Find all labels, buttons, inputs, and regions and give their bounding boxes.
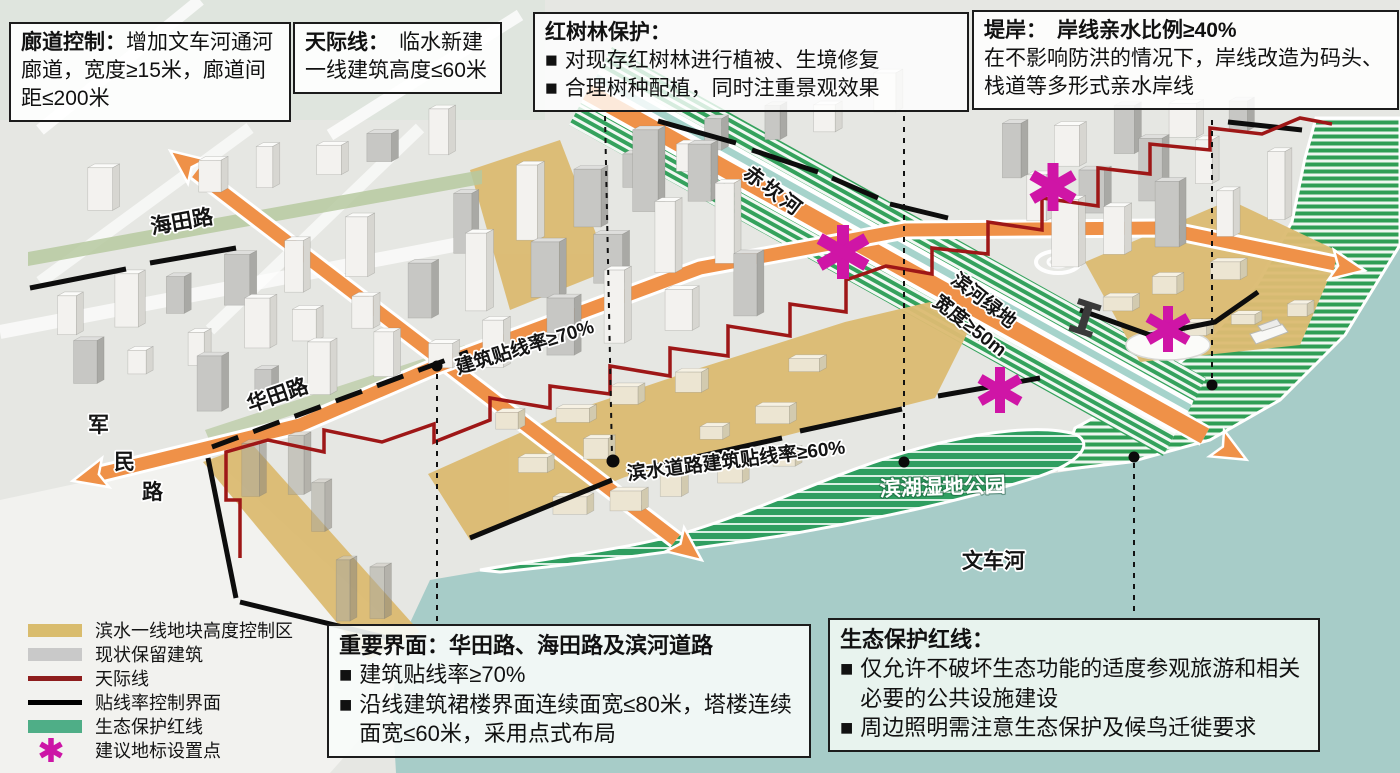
callout-title: 生态保护红线： [840, 625, 1308, 654]
bullet-square-icon: ■ [339, 690, 352, 719]
callout-eco-redline: 生态保护红线： ■ 仅允许不破坏生态功能的适度参观旅游和相关必要的公共设施建设 … [828, 618, 1320, 752]
callout-bullet-item: ■ 合理树种配植，同时注重景观效果 [545, 75, 957, 103]
bullet-square-icon: ■ [545, 75, 558, 103]
callout-title: 重要界面：华田路、海田路及滨河道路 [339, 631, 799, 660]
callout-title: 堤岸： [984, 19, 1047, 42]
callout-bullet-item: ■ 对现存红树林进行植被、生境修复 [545, 47, 957, 75]
callout-important-interface: 重要界面：华田路、海田路及滨河道路 ■ 建筑贴线率≥70% ■ 沿线建筑裙楼界面… [327, 624, 811, 758]
legend-row: 生态保护红线 [28, 714, 338, 738]
callout-item-text: 仅允许不破坏生态功能的适度参观旅游和相关必要的公共设施建设 [860, 654, 1308, 713]
callout-title: 廊道控制： [21, 31, 126, 54]
legend-label: 贴线率控制界面 [95, 689, 221, 715]
callout-title: 红树林保护： [545, 19, 957, 47]
callout-bullet-item: ■ 建筑贴线率≥70% [339, 660, 799, 689]
label-wetland-park: 滨湖湿地公园 [879, 473, 1006, 501]
label-junmin-char: 路 [142, 480, 164, 504]
legend-label: 生态保护红线 [95, 713, 203, 739]
bullet-square-icon: ■ [840, 713, 853, 742]
bullet-square-icon: ■ [545, 47, 558, 75]
legend-row: 滨水一线地块高度控制区 [28, 618, 338, 642]
callout-item-text: 对现存红树林进行植被、生境修复 [565, 47, 880, 75]
bullet-square-icon: ■ [339, 660, 352, 689]
planning-diagram: 海田路 军 民 路 华田路 建筑贴线率≥70% 赤坎河 滨河绿地 宽度≥50m … [0, 0, 1400, 773]
callout-item-text: 建筑贴线率≥70% [359, 660, 525, 689]
callout-item-text: 合理树种配植，同时注重景观效果 [565, 75, 880, 103]
legend-row: 建议地标设置点 [28, 738, 338, 762]
callout-item-text: 沿线建筑裙楼界面连续面宽≤80米，塔楼连续面宽≤60米，采用点式布局 [359, 690, 799, 749]
legend-label: 天际线 [95, 665, 149, 691]
legend-swatch-gray [28, 648, 82, 661]
legend-row: 现状保留建筑 [28, 642, 338, 666]
legend-row: 天际线 [28, 666, 338, 690]
callout-skyline: 天际线：临水新建一线建筑高度≤60米 [293, 22, 502, 94]
landmark-asterisk-icon [28, 736, 82, 764]
callout-bullet-item: ■ 沿线建筑裙楼界面连续面宽≤80米，塔楼连续面宽≤60米，采用点式布局 [339, 690, 799, 749]
legend: 滨水一线地块高度控制区 现状保留建筑 天际线 贴线率控制界面 生态保护红线 建议… [28, 618, 338, 762]
legend-swatch-tan [28, 624, 82, 637]
callout-bullet-item: ■ 仅允许不破坏生态功能的适度参观旅游和相关必要的公共设施建设 [840, 654, 1308, 713]
legend-label: 建议地标设置点 [95, 737, 221, 763]
callout-embankment: 堤岸：岸线亲水比例≥40% 在不影响防洪的情况下，岸线改造为码头、栈道等多形式亲… [972, 10, 1399, 110]
callout-mangrove-protection: 红树林保护： ■ 对现存红树林进行植被、生境修复 ■ 合理树种配植，同时注重景观… [533, 12, 969, 112]
legend-swatch-black-line [28, 700, 82, 705]
bullet-square-icon: ■ [840, 654, 853, 683]
legend-swatch-darkred-line [28, 676, 82, 681]
legend-swatch-green [28, 720, 82, 733]
callout-corridor-control: 廊道控制：增加文车河通河廊道，宽度≥15米，廊道间距≤200米 [9, 22, 291, 122]
legend-label: 现状保留建筑 [95, 641, 203, 667]
callout-body: 在不影响防洪的情况下，岸线改造为码头、栈道等多形式亲水岸线 [984, 45, 1387, 101]
label-junmin-char: 民 [114, 451, 135, 474]
callout-bullet-item: ■ 周边照明需注意生态保护及候鸟迁徙要求 [840, 713, 1308, 742]
callout-item-text: 周边照明需注意生态保护及候鸟迁徙要求 [860, 713, 1256, 742]
legend-row: 贴线率控制界面 [28, 690, 338, 714]
label-wenche-river: 文车河 [962, 549, 1025, 573]
label-junmin-char: 军 [88, 414, 109, 437]
callout-title: 天际线： [305, 31, 389, 54]
callout-highlight: 岸线亲水比例≥40% [1057, 19, 1237, 42]
legend-label: 滨水一线地块高度控制区 [95, 617, 293, 643]
